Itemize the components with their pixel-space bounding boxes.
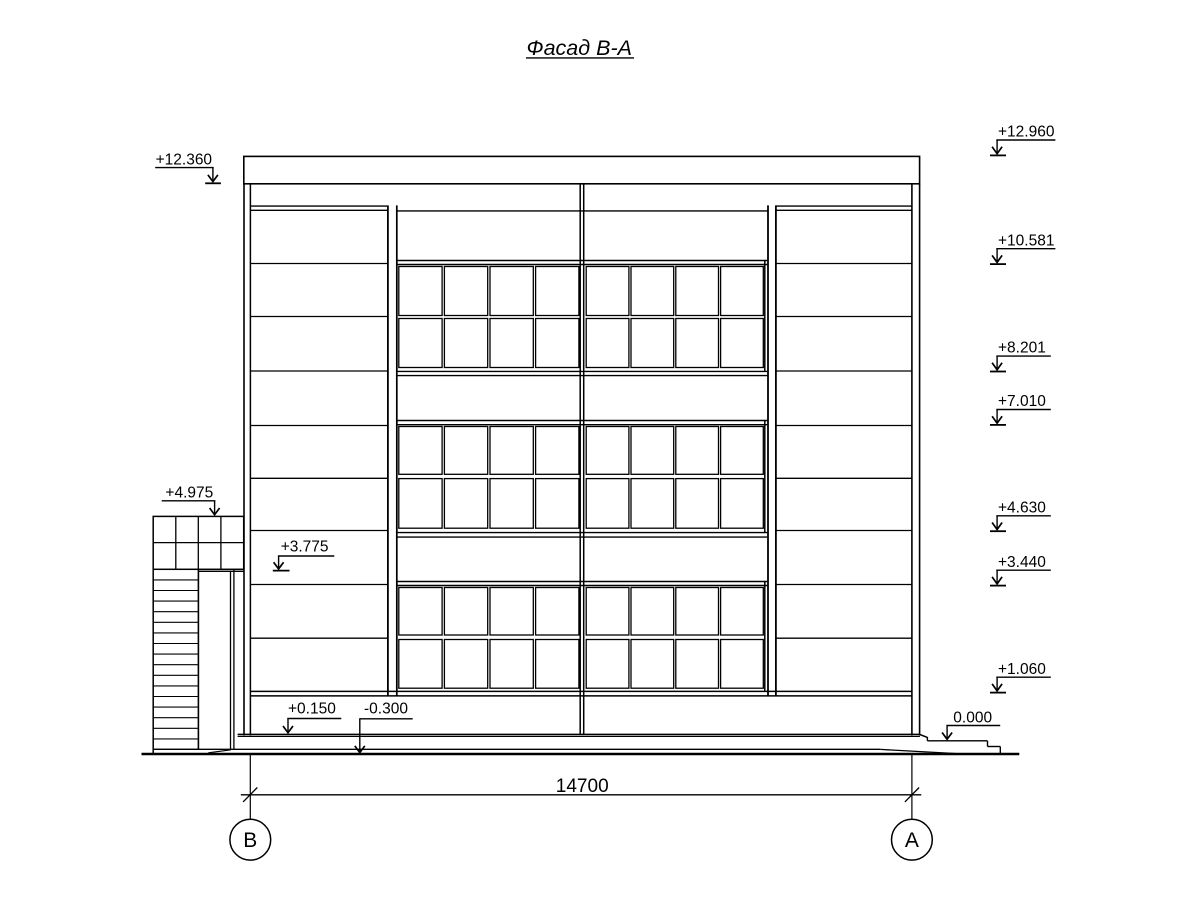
svg-text:+7.010: +7.010: [998, 393, 1046, 410]
svg-text:+10.581: +10.581: [998, 232, 1054, 249]
svg-text:14700: 14700: [556, 776, 609, 797]
svg-text:+4.630: +4.630: [998, 499, 1046, 516]
svg-text:+3.775: +3.775: [281, 539, 329, 556]
svg-text:В: В: [243, 829, 257, 852]
svg-text:+12.360: +12.360: [156, 151, 213, 168]
svg-text:+12.960: +12.960: [998, 124, 1055, 141]
svg-text:+3.440: +3.440: [998, 554, 1046, 571]
svg-text:А: А: [905, 829, 919, 852]
svg-text:+1.060: +1.060: [998, 661, 1046, 678]
svg-text:+4.975: +4.975: [165, 485, 213, 502]
svg-text:0.000: 0.000: [953, 709, 992, 726]
svg-text:-0.300: -0.300: [364, 701, 408, 718]
svg-text:+8.201: +8.201: [998, 340, 1046, 357]
svg-text:Фасад В-А: Фасад В-А: [527, 36, 632, 60]
svg-text:+0.150: +0.150: [288, 701, 336, 718]
